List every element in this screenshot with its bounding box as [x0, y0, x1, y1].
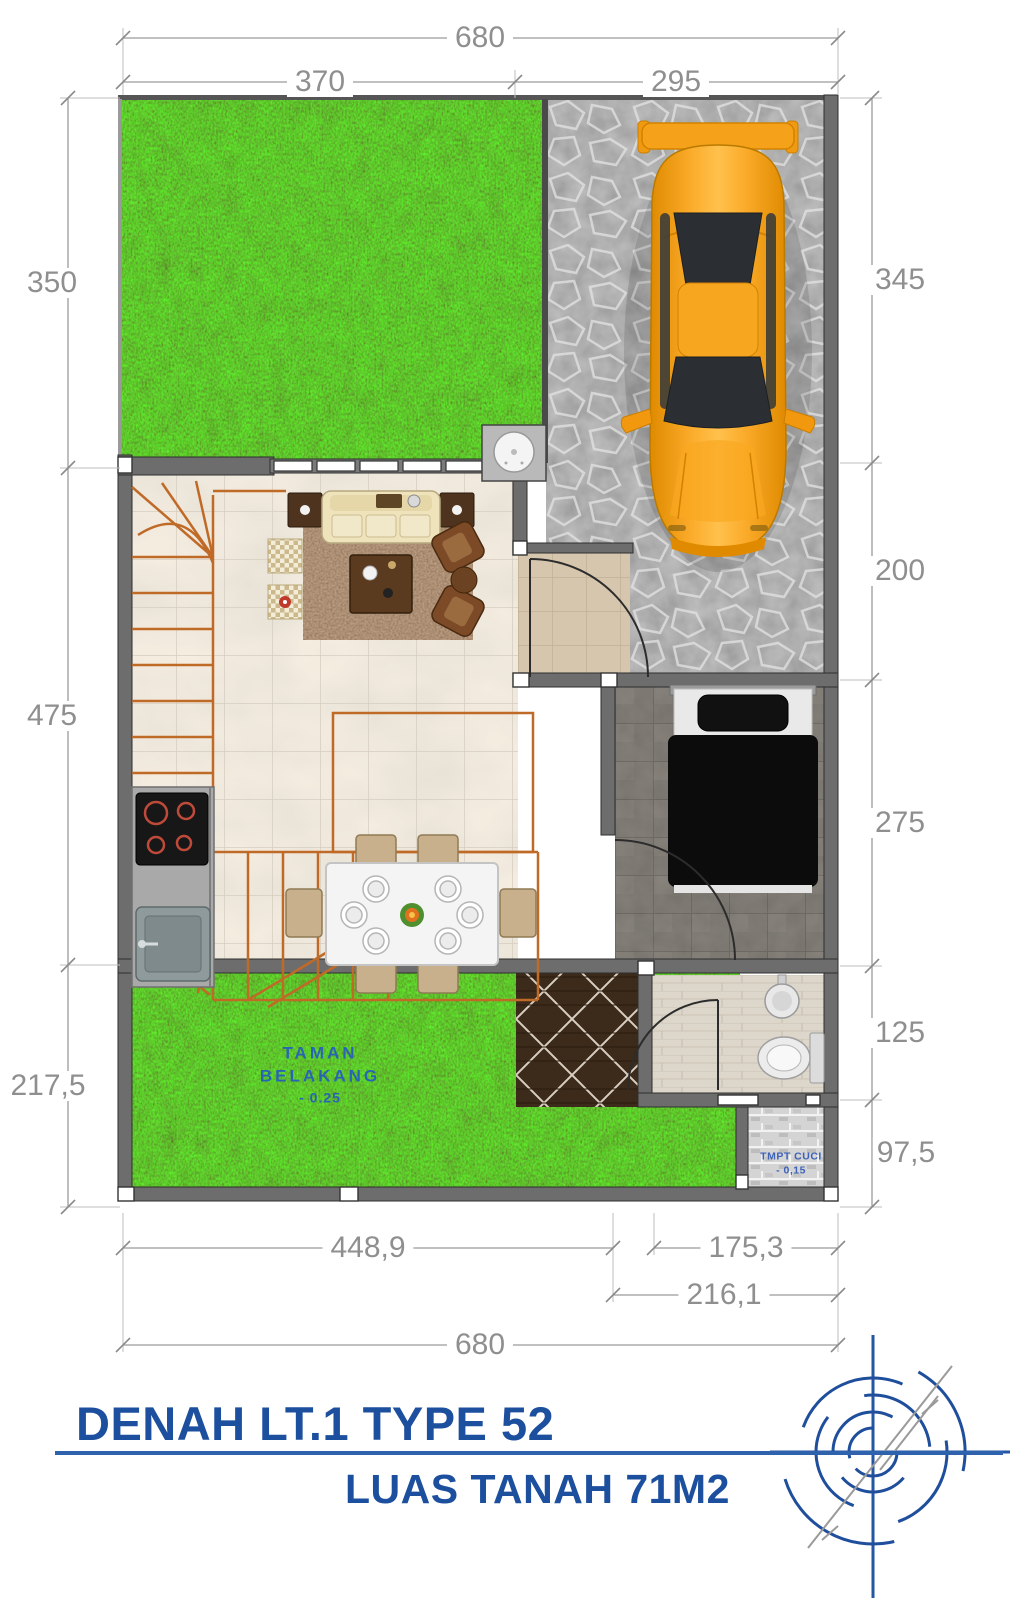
wash-area-label-line1: TMPT CUCI	[760, 1150, 822, 1164]
outdoor-sink	[482, 425, 546, 481]
floorplan-canvas	[0, 0, 1012, 1600]
back-garden-label-line1: TAMAN	[260, 1043, 380, 1066]
pillow	[698, 695, 788, 731]
dim-top-total: 680	[447, 23, 513, 53]
page-subtitle: LUAS TANAH 71M2	[345, 1466, 730, 1513]
wood-deck-floor	[516, 963, 640, 1107]
dim-top-left: 370	[287, 67, 353, 97]
dim-bottom-total: 680	[447, 1330, 513, 1360]
architect-compass-logo-icon	[747, 1326, 1010, 1598]
blanket	[668, 735, 818, 887]
sofa	[322, 491, 440, 543]
floorplan-page: 680 370 295 350 475 217,5 345 200 275 12…	[0, 0, 1012, 1600]
dim-right-bathroom: 125	[871, 1018, 929, 1048]
kitchen-sink	[136, 907, 210, 981]
car-windshield	[664, 357, 772, 428]
car-roof	[678, 283, 758, 357]
dim-left-front-garden: 350	[23, 268, 81, 298]
back-garden-label: TAMAN BELAKANG - 0.25	[260, 1043, 380, 1108]
dim-top-right: 295	[643, 67, 709, 97]
living-room-set	[268, 491, 487, 640]
dim-bottom-mid: 216,1	[678, 1280, 769, 1310]
page-title: DENAH LT.1 TYPE 52	[76, 1396, 554, 1451]
back-garden-label-line3: - 0.25	[260, 1088, 380, 1107]
coffee-table	[350, 555, 412, 613]
toilet-tank	[810, 1033, 824, 1083]
wash-area-label-line2: - 0,15	[760, 1164, 822, 1178]
dim-right-carport: 345	[871, 265, 929, 295]
dim-right-entry: 200	[871, 556, 929, 586]
back-garden-label-line2: BELAKANG	[260, 1066, 380, 1089]
title-divider	[55, 1451, 1003, 1455]
dim-right-bedroom: 275	[871, 808, 929, 838]
dim-bottom-left: 448,9	[322, 1233, 413, 1263]
front-garden-floor	[122, 99, 546, 463]
dim-left-living: 475	[23, 701, 81, 731]
side-stool	[451, 567, 477, 593]
bed	[668, 685, 818, 893]
car-rear-window	[674, 213, 762, 290]
table-centerpiece	[400, 903, 424, 927]
pouf	[268, 539, 302, 573]
living-room-windows	[274, 461, 482, 471]
dim-left-back-garden: 217,5	[6, 1071, 89, 1101]
dim-right-wash: 97,5	[873, 1138, 939, 1168]
kitchen-counter	[132, 787, 214, 987]
bathroom-floor	[652, 975, 824, 1095]
entry-porch-floor	[518, 543, 630, 679]
dim-bottom-right: 175,3	[700, 1233, 791, 1263]
floorplan	[118, 95, 838, 1201]
cooktop	[136, 793, 208, 865]
wash-area-label: TMPT CUCI - 0,15	[760, 1150, 822, 1177]
